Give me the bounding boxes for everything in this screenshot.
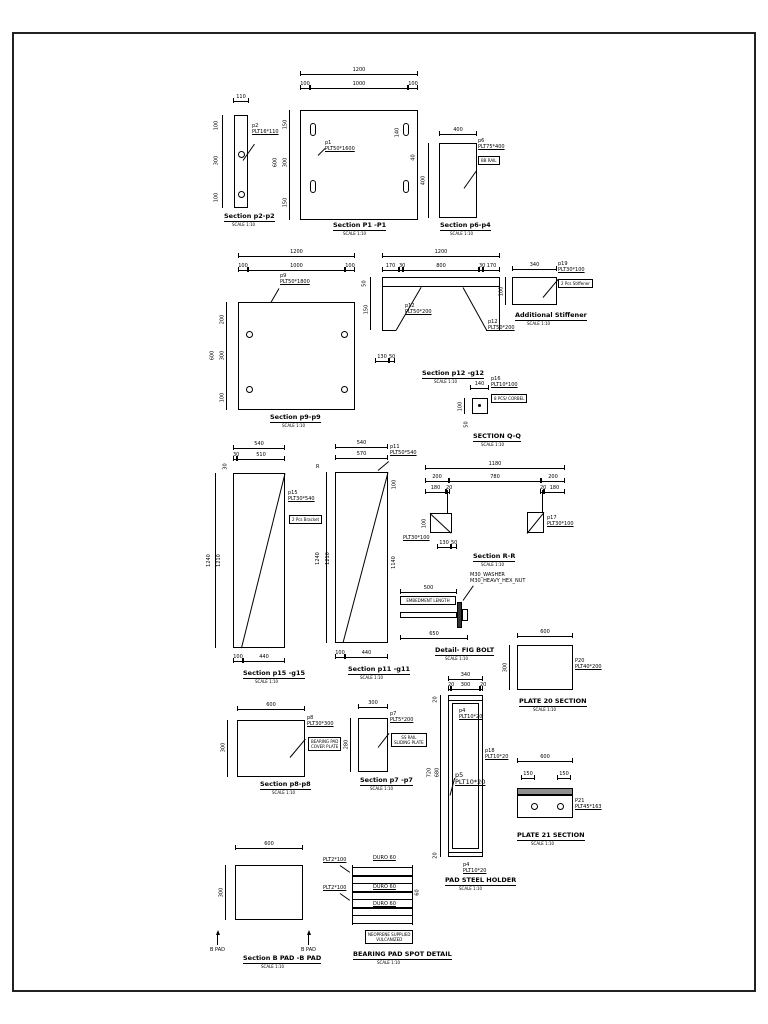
- plate-label: P20PLT40*200: [575, 658, 602, 670]
- figure-title: Section p2-p2: [224, 213, 275, 222]
- plate-label: p19PLT30*100: [558, 261, 585, 273]
- dim-seg: 200: [425, 475, 449, 482]
- section-arrow-stem: [217, 935, 218, 945]
- dim-height: 400: [421, 176, 426, 186]
- dim-left-total: 600: [273, 158, 278, 168]
- dim-height: 300: [503, 663, 508, 673]
- dim-bottom: 440: [345, 651, 388, 658]
- dim-bottom: 100: [233, 655, 243, 662]
- holder-line: [448, 852, 483, 853]
- bolt-hole: [246, 386, 253, 393]
- figure-scale: SCALE 1:10: [459, 887, 482, 891]
- dim-right: 40: [412, 154, 417, 160]
- dim-width: 400: [439, 128, 477, 135]
- dim-bottom: 50: [389, 355, 395, 362]
- dim-width: 600: [517, 755, 573, 762]
- dim-right: 100: [392, 480, 397, 490]
- figure-title: SECTION Q-Q: [473, 433, 521, 442]
- dim-width: 300: [358, 701, 388, 708]
- dim-seg: 100: [345, 264, 355, 271]
- dim-width: 340: [448, 673, 483, 680]
- dim-line: [225, 865, 226, 920]
- dim-bottom: 130: [437, 541, 451, 548]
- dim-height: 300: [219, 888, 224, 898]
- dim-seg: 100: [238, 264, 248, 271]
- plate-label: p6PLT75*400: [478, 138, 505, 150]
- bolt-hole: [246, 331, 253, 338]
- note-box: SS RAILSLIDING PLATE: [391, 733, 427, 747]
- weld-dot: [478, 404, 481, 407]
- figure-title: Section B PAD -B PAD: [243, 955, 321, 964]
- dim-width2: 570: [335, 452, 388, 459]
- dim-line: [222, 115, 223, 208]
- stack-layer: [352, 923, 412, 924]
- figure-scale: SCALE 1:10: [445, 657, 468, 661]
- figure-title: Section p6-p4: [440, 222, 491, 231]
- dim-topleft: 30: [224, 463, 229, 469]
- bolt-shaft: [400, 612, 457, 618]
- dim-left: 20: [434, 696, 439, 702]
- figure-scale: SCALE 1:10: [343, 232, 366, 236]
- dim-left: 100: [214, 121, 219, 131]
- stack-edge: [412, 865, 413, 925]
- plate-label: p15PLT30*540: [288, 490, 315, 502]
- section-marker: B PAD: [210, 947, 225, 953]
- slotted-hole: [403, 123, 409, 136]
- elastomer-label: DURO 60: [373, 884, 396, 890]
- note-box: BB RAIL: [478, 156, 500, 165]
- plate-label: p5PLT10*20: [455, 772, 485, 786]
- figure-scale: SCALE 1:10: [261, 965, 284, 969]
- dim-height: 100: [499, 287, 504, 297]
- elastomer-label: DURO 60: [373, 901, 396, 907]
- steel-shim: [352, 875, 412, 877]
- dim-bottom: 50: [451, 541, 457, 548]
- dim-left: 720: [427, 768, 432, 778]
- slotted-hole: [310, 123, 316, 136]
- figure-title: Detail- FIG BOLT: [435, 647, 494, 656]
- dim-left: 1240: [207, 554, 212, 567]
- figure-scale: SCALE 1:10: [531, 842, 554, 846]
- note-box: BEARING PADCOVER PLATE: [308, 737, 341, 751]
- stack-layer: [352, 899, 412, 900]
- figure-title: PLATE 21 SECTION: [517, 832, 585, 841]
- dim-left: 1210: [326, 552, 331, 565]
- plate-rect: [238, 302, 355, 410]
- dim-sub: 180: [544, 486, 565, 493]
- plate-label: p9PLT50*1800: [280, 273, 310, 285]
- steel-shim: [352, 907, 412, 909]
- bolt-hole: [531, 803, 538, 810]
- note-box: NEOPRENE SUPPLIEDVULCANIZED: [365, 930, 413, 944]
- dim-sub: 180: [425, 486, 446, 493]
- figure-scale: SCALE 1:10: [360, 676, 383, 680]
- dim-left: 1210: [217, 554, 222, 567]
- figure-title: Additional Stiffener: [515, 312, 587, 321]
- dim-width: 1180: [425, 462, 565, 469]
- bolt-hole: [341, 386, 348, 393]
- dim-left: 20: [434, 852, 439, 858]
- figure-scale: SCALE 1:10: [481, 443, 504, 447]
- dim-left: 150: [283, 198, 288, 208]
- figure-title: Section p12 -g12: [422, 370, 484, 379]
- dim-width: 600: [237, 703, 305, 710]
- stack-edge: [352, 865, 353, 925]
- bolt-hole: [341, 331, 348, 338]
- dim-overall: 650: [400, 632, 468, 639]
- dim-line: [226, 302, 227, 410]
- pad-rect: [235, 865, 303, 920]
- drawing-sheet: 110 100 300 100 p2PLT16*110 Section p2-p…: [0, 0, 768, 1024]
- plate-label: PLT2*100: [323, 857, 346, 863]
- washer-label: M30_WASHERM30_HEAVY_HEX_NUT: [470, 572, 525, 584]
- dim-bottom: 100: [335, 651, 345, 658]
- plate-label: p1PLT50*1600: [325, 140, 355, 152]
- plate-label: p12PLT50*200: [405, 303, 432, 315]
- dim-seg: 170: [483, 264, 500, 271]
- dim-width: 140: [470, 382, 489, 389]
- dim-line: [350, 718, 351, 772]
- figure-title: Section p8-p8: [260, 781, 311, 790]
- plate-label: p17PLT30*100: [547, 515, 574, 527]
- plate-label: p8PLT30*300: [307, 715, 334, 727]
- figure-title: Section P1 -P1: [333, 222, 386, 231]
- note-box: 2 Pcs Bracket: [289, 515, 322, 524]
- dim-right: 1140: [392, 556, 397, 569]
- figure-scale: SCALE 1:10: [255, 680, 278, 684]
- dim-line: [464, 398, 465, 414]
- dim-seg: 200: [541, 475, 565, 482]
- dim-line: [370, 277, 371, 330]
- plate-rect: [300, 110, 418, 220]
- figure-scale: SCALE 1:10: [370, 787, 393, 791]
- dim-seg: 100: [300, 82, 310, 89]
- plate-rect: [512, 277, 557, 305]
- slotted-hole: [403, 180, 409, 193]
- dim-left: 100: [458, 402, 463, 412]
- section-marker: B PAD: [301, 947, 316, 953]
- plate-rect: [358, 718, 388, 772]
- figure-title: BEARING PAD SPOT DETAIL: [353, 951, 452, 960]
- gusset-edge: [382, 330, 396, 331]
- figure-scale: SCALE 1:10: [533, 708, 556, 712]
- dim-left: 300: [214, 156, 219, 166]
- dim-line: [505, 277, 506, 305]
- plate-rect: [517, 645, 573, 690]
- dim-seg: 170: [382, 264, 399, 271]
- dim-width: 600: [517, 630, 573, 637]
- dim-seg: 300: [451, 683, 480, 690]
- dim-seg: 1000: [310, 82, 408, 89]
- figure-title: PLATE 20 SECTION: [519, 698, 587, 707]
- plate-label: p11PLT50*540: [390, 444, 417, 456]
- figure-scale: SCALE 1:10: [434, 380, 457, 384]
- elastomer-band: [517, 788, 573, 795]
- dim-width: 540: [233, 442, 285, 449]
- dim-line: [227, 720, 228, 777]
- figure-title: Section R-R: [473, 553, 515, 562]
- dim-width: 110: [233, 95, 249, 102]
- figure-scale: SCALE 1:10: [481, 563, 504, 567]
- dim-embed: 500: [400, 586, 457, 593]
- dim-left-total: 600: [210, 351, 215, 361]
- plate-rect: [517, 795, 573, 818]
- dim-height: 300: [221, 743, 226, 753]
- plate-label: p7PLT5*200: [390, 711, 413, 723]
- plate-label: p16PLT10*100: [491, 376, 518, 388]
- plate-label: p18PLT10*20: [485, 748, 508, 760]
- elastomer-label: DURO 60: [373, 855, 396, 861]
- plate-label: P21PLT45*163: [575, 798, 602, 810]
- stack-layer: [352, 867, 412, 868]
- dim-line: [289, 110, 290, 220]
- figure-scale: SCALE 1:10: [527, 322, 550, 326]
- note-box: 8 PCS/ CORBEL: [491, 394, 527, 403]
- plate-label: p4PLT10*20: [463, 862, 486, 874]
- figure-title: Section p9-p9: [270, 414, 321, 423]
- ref-mark: R: [316, 464, 319, 470]
- dim-line: [509, 645, 510, 690]
- figure-title: PAD STEEL HOLDER: [445, 877, 516, 886]
- figure-title: Section p11 -g11: [348, 666, 410, 675]
- steel-shim: [352, 891, 412, 893]
- dim-width: 340: [512, 263, 557, 270]
- dim-left: 100: [214, 193, 219, 203]
- figure-scale: SCALE 1:10: [272, 791, 295, 795]
- note-box: 2 Pcs Stiffener: [558, 279, 593, 288]
- dim-left: 300: [220, 351, 225, 361]
- dim-left: 150: [283, 120, 288, 130]
- holder-line: [448, 700, 483, 701]
- dim-width: 1200: [300, 68, 418, 75]
- dim-width: 1200: [382, 250, 500, 257]
- figure-scale: SCALE 1:10: [232, 223, 255, 227]
- dim-bottom: 130: [375, 355, 389, 362]
- dim-left: 100: [422, 519, 427, 529]
- dim-left: 1240: [316, 552, 321, 565]
- dim-line: [428, 143, 429, 218]
- figure-scale: SCALE 1:10: [377, 961, 400, 965]
- figure-scale: SCALE 1:10: [450, 232, 473, 236]
- dim-width: 540: [335, 441, 388, 448]
- bolt-hole: [238, 191, 245, 198]
- plate-label: PLT2*100: [323, 885, 346, 891]
- dim-width: 600: [235, 842, 303, 849]
- dim-left: 50: [363, 280, 368, 286]
- dim-right: 60: [416, 889, 421, 895]
- drop-line: [447, 490, 448, 513]
- dim-sub: 150: [521, 772, 535, 779]
- dim-sub: 150: [557, 772, 571, 779]
- dim-bottom: 440: [243, 655, 285, 662]
- dim-bottom: 50: [465, 421, 470, 427]
- dim-seg: 780: [449, 475, 541, 482]
- figure-title: Section p15 -g15: [243, 670, 305, 679]
- gusset-edge: [382, 287, 383, 330]
- top-plate: [382, 277, 500, 287]
- dim-width: 1200: [238, 250, 355, 257]
- plate-label: PLT30*100: [403, 535, 430, 541]
- figure-title: Section p7 -p7: [360, 777, 413, 786]
- plate-rect: [237, 720, 305, 777]
- drop-line: [542, 490, 543, 513]
- dim-left: 680: [435, 768, 440, 778]
- dim-seg: 510: [237, 453, 285, 460]
- dim-right: 140: [395, 128, 400, 138]
- section-arrow-stem: [308, 935, 309, 945]
- note-box: EMBEDMENT LENGTH: [400, 596, 456, 605]
- dim-seg: 1000: [248, 264, 345, 271]
- plate-label: p2PLT16*110: [252, 123, 279, 135]
- dim-left: 200: [220, 315, 225, 325]
- dim-height: 280: [344, 740, 349, 750]
- hex-nut: [462, 609, 468, 621]
- bolt-hole: [557, 803, 564, 810]
- figure-scale: SCALE 1:10: [282, 424, 305, 428]
- dim-left: 300: [283, 158, 288, 168]
- dim-left: 150: [364, 305, 369, 315]
- plate-rect: [439, 143, 477, 218]
- dim-seg: 20: [480, 683, 483, 690]
- dim-seg: 100: [408, 82, 418, 89]
- dim-seg: 800: [403, 264, 479, 271]
- plate-label: p12PLT50*200: [488, 319, 515, 331]
- stack-layer: [352, 915, 412, 916]
- dim-left: 100: [220, 393, 225, 403]
- plate-label: p4PLT10*20: [459, 708, 482, 720]
- slotted-hole: [310, 180, 316, 193]
